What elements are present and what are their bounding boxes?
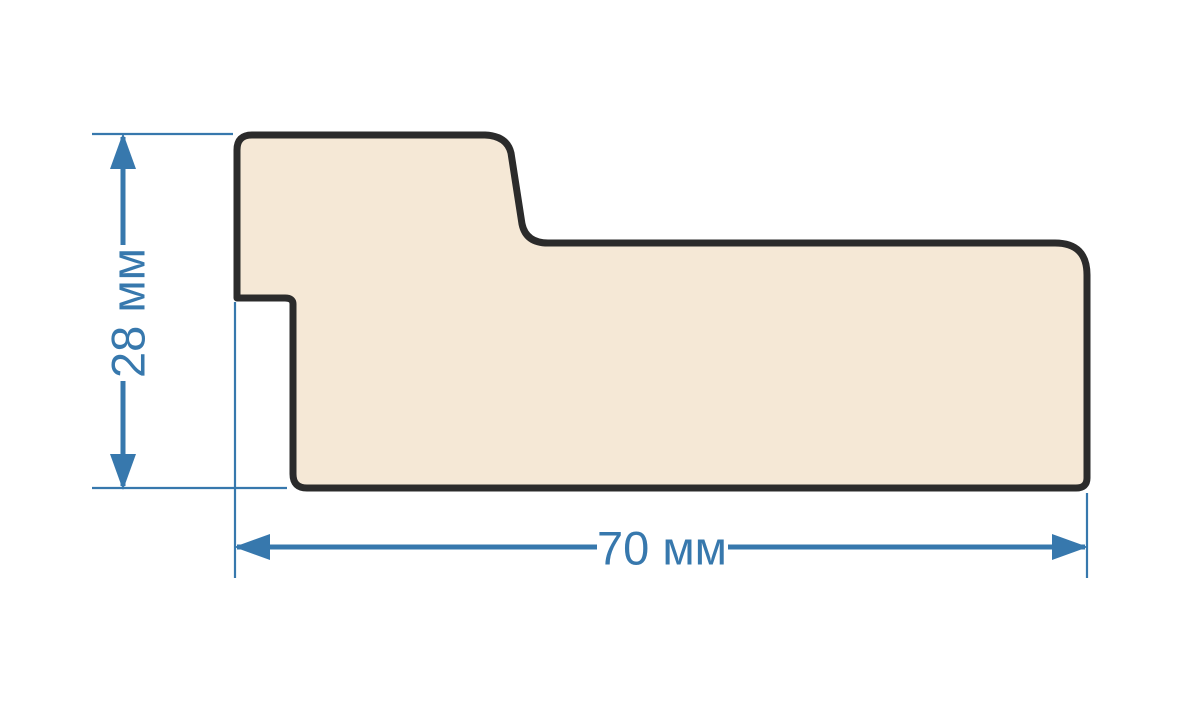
arrow-up-icon bbox=[110, 133, 136, 169]
height-dimension-label: 28 мм bbox=[102, 248, 155, 378]
profile-shape bbox=[237, 135, 1087, 488]
arrow-right-icon bbox=[1052, 534, 1088, 560]
arrow-down-icon bbox=[110, 454, 136, 490]
profile-diagram-svg: 28 мм 70 мм bbox=[0, 0, 1184, 712]
diagram-canvas: 28 мм 70 мм bbox=[0, 0, 1184, 712]
arrow-left-icon bbox=[234, 534, 270, 560]
width-dimension-label: 70 мм bbox=[597, 522, 727, 575]
